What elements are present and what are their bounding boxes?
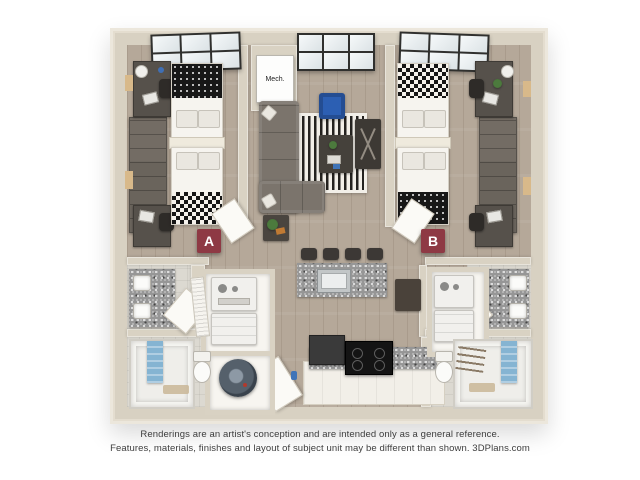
range-stove bbox=[345, 341, 393, 375]
mech-label: Mech. bbox=[265, 76, 284, 83]
burner bbox=[352, 348, 363, 359]
towel-b bbox=[501, 341, 517, 383]
disclaimer-line-1: Renderings are an artist's conception an… bbox=[0, 428, 640, 442]
bed-b-2-pillow bbox=[402, 152, 424, 170]
accent-chair-blue bbox=[319, 93, 345, 119]
burner bbox=[352, 360, 363, 371]
coffee-table-book bbox=[333, 164, 340, 169]
pinboard-a-1 bbox=[125, 75, 133, 91]
bed-a-1-pillow bbox=[198, 110, 220, 128]
desk-chair-b-1 bbox=[469, 79, 484, 98]
unit-b-badge: B bbox=[421, 229, 445, 253]
unit-a-label: A bbox=[204, 233, 214, 249]
bed-b-2-pillow bbox=[424, 152, 446, 170]
wall-below-bedroom-b bbox=[425, 257, 531, 265]
desk-accessory-blue-a bbox=[158, 67, 164, 73]
tv-console bbox=[355, 119, 381, 169]
vanity-b-sink bbox=[509, 275, 527, 291]
vanity-b-sink bbox=[509, 303, 527, 319]
desk-lamp-b-1 bbox=[501, 65, 514, 78]
disclaimer-line-2: Features, materials, finishes and layout… bbox=[0, 442, 640, 456]
washer-a bbox=[211, 277, 257, 311]
bed-b-1-blanket bbox=[398, 64, 448, 98]
bed-a-1-blanket bbox=[172, 64, 222, 98]
coffee-table-tray bbox=[327, 155, 341, 164]
dryer-a bbox=[211, 313, 257, 345]
floor-plan: Mech. A bbox=[110, 28, 548, 424]
towel-a bbox=[147, 341, 163, 383]
bath-mat-a bbox=[163, 385, 189, 394]
bath-mat-b bbox=[469, 383, 495, 392]
wall-bedroom-b bbox=[385, 45, 395, 227]
unit-b-label: B bbox=[428, 233, 438, 249]
vanity-a-sink bbox=[133, 303, 151, 319]
water-heater bbox=[219, 359, 257, 397]
dishwasher bbox=[309, 335, 345, 365]
kitchen-corner-cabinet bbox=[395, 279, 421, 311]
bed-a-2-pillow bbox=[198, 152, 220, 170]
disclaimer: Renderings are an artist's conception an… bbox=[0, 428, 640, 455]
island-sink bbox=[317, 269, 351, 293]
heater-valve bbox=[243, 383, 247, 387]
bed-a-1-pillow bbox=[176, 110, 198, 128]
desk-chair-b-2 bbox=[469, 213, 484, 231]
bar-stool bbox=[323, 248, 339, 260]
wall-below-bedroom-a bbox=[127, 257, 209, 265]
desk-lamp-a-1 bbox=[135, 65, 148, 78]
bed-b-1-pillow bbox=[424, 110, 446, 128]
bed-b-1-pillow bbox=[402, 110, 424, 128]
washer-b bbox=[434, 275, 474, 308]
unit-a-badge: A bbox=[197, 229, 221, 253]
mech-closet-box: Mech. bbox=[256, 55, 294, 103]
entry-accessory-blue bbox=[291, 371, 297, 380]
pinboard-b-1 bbox=[523, 81, 531, 97]
toilet-a bbox=[193, 361, 211, 383]
dryer-b bbox=[434, 310, 474, 342]
desk-plant-b bbox=[493, 79, 502, 88]
window-living-room bbox=[297, 33, 375, 71]
coffee-table-plant bbox=[329, 141, 337, 149]
wall-bedroom-a bbox=[238, 45, 248, 227]
toilet-b bbox=[435, 361, 453, 383]
bar-stool bbox=[301, 248, 317, 260]
burner bbox=[374, 360, 385, 371]
page: { "floorplan": { "unit_label_a": "A", "u… bbox=[0, 0, 640, 480]
pinboard-b-2 bbox=[523, 177, 531, 195]
pinboard-a-2 bbox=[125, 171, 133, 189]
towel-ladder-b bbox=[455, 343, 486, 373]
bed-a-2-pillow bbox=[176, 152, 198, 170]
vanity-a-sink bbox=[133, 275, 151, 291]
bed-a-1 bbox=[171, 63, 223, 139]
washer-dial bbox=[232, 286, 238, 292]
bar-stool bbox=[367, 248, 383, 260]
laptop-a-2 bbox=[138, 210, 155, 223]
washer-dial bbox=[453, 284, 459, 290]
burner bbox=[374, 348, 385, 359]
bed-b-1 bbox=[397, 63, 449, 139]
washer-dial bbox=[218, 284, 227, 293]
bar-stool bbox=[345, 248, 361, 260]
washer-slot bbox=[218, 298, 250, 305]
washer-dial bbox=[440, 282, 449, 291]
